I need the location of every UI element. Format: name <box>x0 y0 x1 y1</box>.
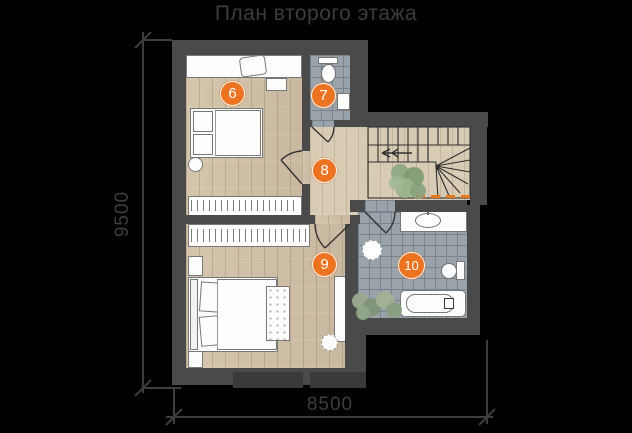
dimension-label-horizontal: 8500 <box>270 394 390 416</box>
floor-plan-page: План второго этажа <box>0 0 632 433</box>
room-marker-9: 9 <box>312 252 337 277</box>
room-marker-10: 10 <box>398 252 425 279</box>
wall <box>172 40 368 55</box>
double-bed-icon <box>188 277 278 352</box>
door-opening <box>365 200 395 212</box>
stool-icon <box>188 157 203 172</box>
wall <box>334 120 350 127</box>
rug-icon <box>266 286 290 341</box>
round-rug-icon <box>362 240 382 260</box>
page-title: План второго этажа <box>0 2 632 26</box>
shelf-icon <box>266 78 287 91</box>
wall <box>467 205 480 335</box>
chair-icon <box>239 54 268 77</box>
window-icon <box>233 372 303 388</box>
wall <box>302 120 312 127</box>
bathtub-icon <box>400 290 466 317</box>
bed-icon <box>190 108 263 158</box>
wall <box>348 318 480 335</box>
room-number: 8 <box>320 163 328 178</box>
door-opening <box>312 120 334 127</box>
room-marker-6: 6 <box>220 81 245 106</box>
toilet-tank-icon <box>318 57 338 64</box>
staircase-floor <box>368 127 470 200</box>
room-marker-8: 8 <box>312 158 337 183</box>
room-number: 6 <box>228 86 236 101</box>
small-sink-icon <box>337 93 350 110</box>
wall <box>302 55 310 151</box>
dimension-label-vertical: 9500 <box>111 184 135 244</box>
toilet-tank-icon <box>456 261 465 280</box>
nightstand-icon <box>188 351 203 368</box>
wardrobe-icon <box>188 196 302 216</box>
wall <box>395 200 467 212</box>
round-rug-icon <box>321 334 338 351</box>
window-icon <box>310 372 366 388</box>
room-number: 7 <box>319 88 327 103</box>
wall <box>350 112 488 127</box>
room-number: 10 <box>404 259 418 272</box>
nightstand-icon <box>188 256 203 276</box>
room-marker-7: 7 <box>311 83 336 108</box>
toilet-icon <box>441 263 457 279</box>
door-opening <box>302 151 310 184</box>
wall <box>350 200 365 212</box>
room-number: 9 <box>320 257 328 272</box>
wall <box>345 215 358 368</box>
wall <box>172 40 186 385</box>
wall <box>186 215 315 224</box>
toilet-icon <box>321 64 336 83</box>
door-opening <box>315 215 350 224</box>
wall <box>470 112 487 205</box>
wardrobe-icon <box>188 224 310 247</box>
